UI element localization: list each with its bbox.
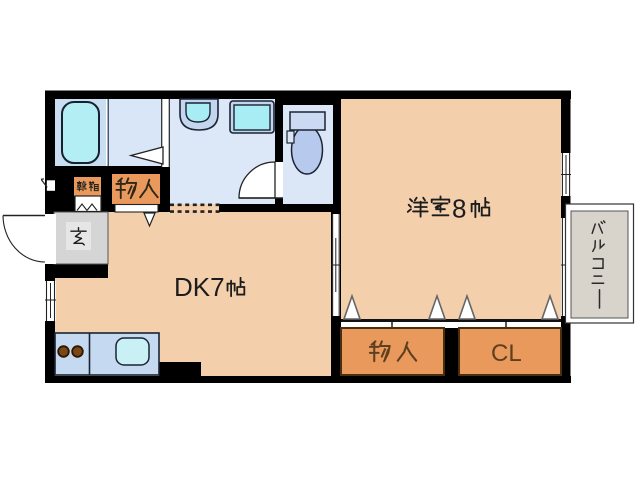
svg-text:8: 8 bbox=[452, 194, 466, 224]
svg-text:DK7: DK7 bbox=[174, 272, 225, 302]
svg-text:CL: CL bbox=[491, 340, 522, 367]
